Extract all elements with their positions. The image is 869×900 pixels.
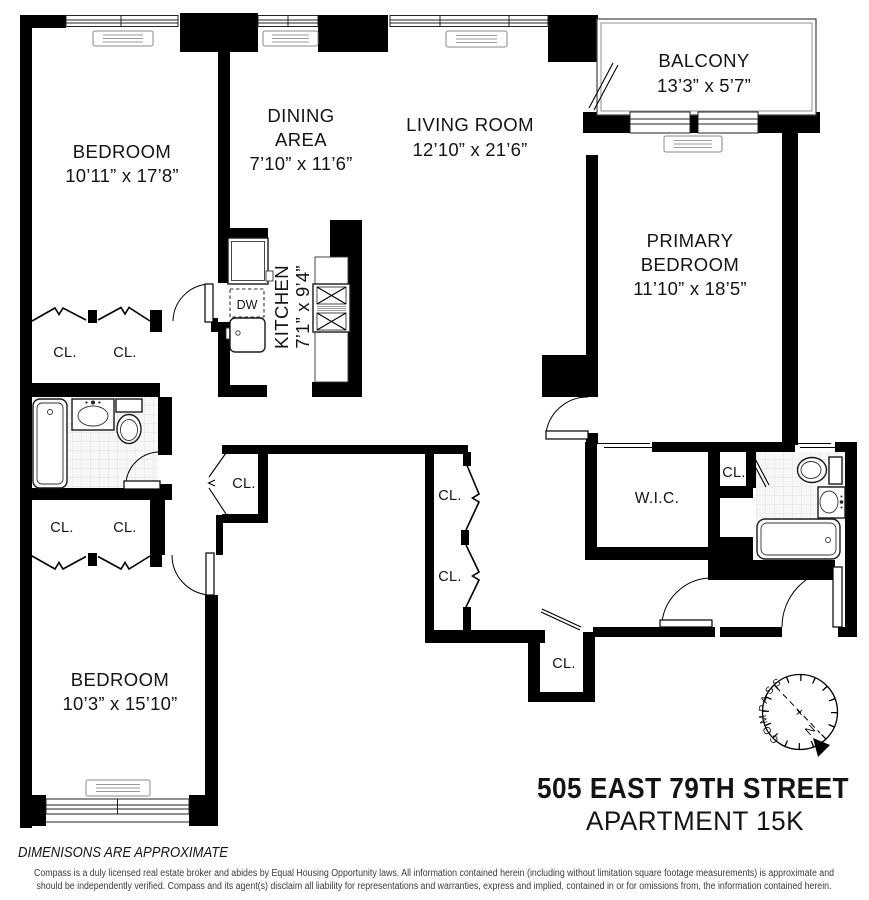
kitchen-dims: 7’1” x 9’4” — [292, 265, 313, 348]
door-corridor-closet — [209, 453, 227, 514]
bathroom-left — [32, 397, 160, 489]
bedroom-bottom-dims: 10’3” x 15’10” — [63, 693, 178, 714]
wic-label: W.I.C. — [635, 490, 680, 507]
closet-label-lower-1: CL. — [50, 520, 73, 536]
dimensions-note: DIMENISONS ARE APPROXIMATE — [18, 844, 229, 861]
closet-label-bedroomtop-1: CL. — [53, 345, 76, 361]
dining-dims: 7’10” x 11’6” — [249, 153, 352, 174]
closet-label-corridor: CL. — [232, 476, 255, 492]
balcony-label: BALCONY — [658, 50, 749, 71]
window-living — [390, 16, 548, 27]
door-bedroom-bottom — [172, 553, 214, 595]
kitchen-label: KITCHEN — [271, 265, 292, 349]
toilet-icon — [798, 457, 843, 484]
primary-bedroom-label-1: PRIMARY — [647, 230, 734, 251]
living-room-dims: 12’10” x 21’6” — [413, 139, 528, 160]
closet-label-lower-2: CL. — [113, 520, 136, 536]
door-entry — [660, 578, 712, 627]
floorplan-page: BEDROOM 10’11” x 17’8” DINING AREA 7’10”… — [0, 0, 869, 900]
bathtub-icon — [33, 399, 67, 488]
living-room-label: LIVING ROOM — [406, 114, 534, 135]
compass-icon: COMPASS + N — [757, 675, 838, 758]
radiator-primary — [664, 136, 722, 152]
dishwasher-label: DW — [237, 298, 258, 312]
closet-label-foyer: CL. — [552, 656, 575, 672]
closet-label-hall-1: CL. — [438, 488, 461, 504]
door-foyer-closet — [541, 609, 581, 630]
bathtub-icon — [757, 519, 840, 559]
radiator-living — [446, 31, 507, 47]
closet-label-bath: CL. — [722, 465, 745, 481]
door-bedroom-top — [173, 284, 213, 322]
kitchen-sink-icon — [226, 318, 265, 352]
bedroom-top-dims: 10’11” x 17’8” — [65, 165, 179, 186]
sliding-door-wic — [597, 444, 657, 448]
dining-label-1: DINING — [267, 105, 334, 126]
address-title: 505 EAST 79TH STREET — [537, 773, 849, 805]
radiator-bedroom-bottom — [86, 780, 150, 796]
bedroom-top-label: BEDROOM — [73, 141, 171, 162]
radiator-dining — [263, 31, 318, 46]
bathroom-right — [749, 444, 845, 560]
dining-label-2: AREA — [275, 129, 327, 150]
bedroom-bottom-label: BEDROOM — [71, 669, 169, 690]
apartment-subtitle: APARTMENT 15K — [586, 806, 804, 836]
disclaimer-line-2: should be independently verified. Compas… — [37, 881, 832, 892]
sink-icon — [818, 487, 845, 518]
refrigerator-icon — [228, 238, 273, 284]
stove-icon — [313, 284, 350, 332]
window-dining — [258, 16, 318, 27]
disclaimer-line-1: Compass is a duly licensed real estate b… — [34, 868, 834, 879]
window-bedroom-top — [66, 16, 178, 27]
closet-label-bedroomtop-2: CL. — [113, 345, 136, 361]
balcony-dims: 13’3” x 5’7” — [657, 75, 751, 96]
primary-bedroom-dims: 11’10” x 18’5” — [633, 278, 747, 299]
door-primary-bedroom — [546, 397, 588, 439]
radiator-bedroom-top — [93, 31, 153, 46]
primary-bedroom-label-2: BEDROOM — [641, 254, 739, 275]
closet-label-hall-2: CL. — [438, 569, 461, 585]
sink-icon — [72, 399, 114, 430]
floorplan-drawing: BEDROOM 10’11” x 17’8” DINING AREA 7’10”… — [0, 0, 869, 900]
window-bedroom-bottom — [46, 799, 189, 822]
window-primary-right — [698, 112, 758, 133]
window-primary-left — [630, 112, 690, 133]
toilet-icon — [116, 399, 142, 444]
sliding-door-bathroom — [793, 444, 838, 448]
